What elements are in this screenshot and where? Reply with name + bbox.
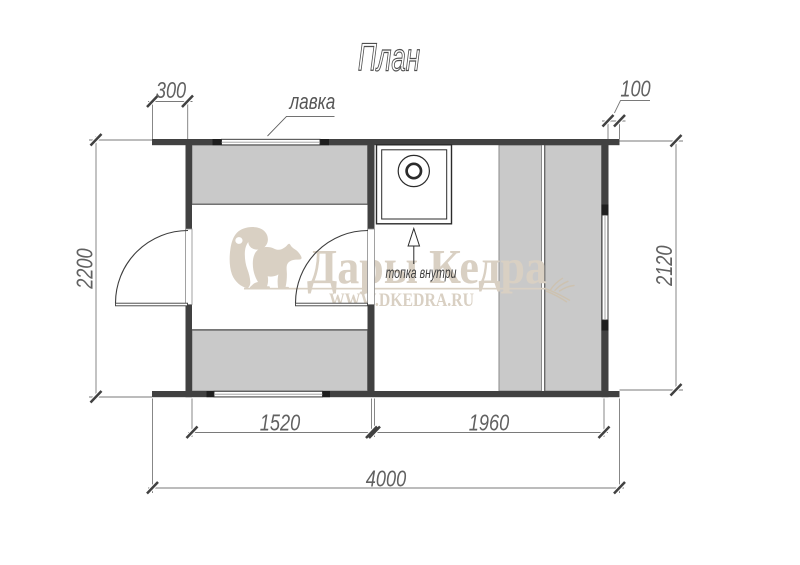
svg-text:2120: 2120 [652, 245, 678, 287]
svg-text:1520: 1520 [260, 411, 301, 437]
svg-text:топка внутри: топка внутри [386, 264, 458, 282]
svg-text:лавка: лавка [289, 90, 336, 115]
svg-text:4000: 4000 [366, 467, 407, 493]
svg-text:100: 100 [620, 77, 651, 103]
svg-text:2200: 2200 [73, 248, 99, 290]
svg-text:План: План [358, 35, 420, 78]
svg-text:300: 300 [156, 78, 187, 104]
svg-text:1960: 1960 [469, 411, 510, 437]
svg-text:WWW.DKEDRA.RU: WWW.DKEDRA.RU [329, 291, 474, 311]
